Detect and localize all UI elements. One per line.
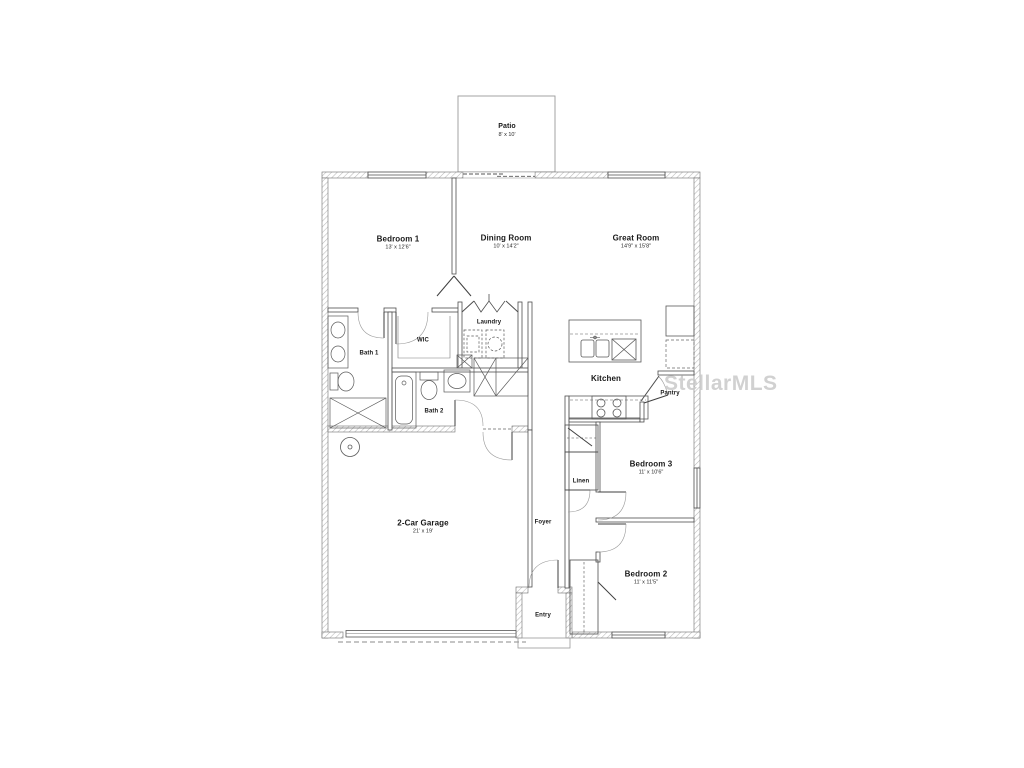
room-label-kitchen: Kitchen	[591, 374, 621, 384]
dryer-icon	[486, 330, 504, 358]
room-label-greatroom: Great Room 14'9" x 15'8"	[613, 234, 660, 251]
shower-icon	[330, 398, 386, 428]
garage-entry-door-arc	[483, 432, 512, 460]
room-label-bedroom1: Bedroom 1 13' x 12'6"	[377, 235, 420, 252]
room-label-foyer: Foyer	[535, 519, 552, 527]
room-label-bedroom2: Bedroom 2 11' x 11'5"	[625, 570, 668, 587]
room-label-bath1: Bath 1	[360, 350, 379, 358]
mls-watermark: StellarMLS	[664, 372, 778, 396]
bedroom2-door-arc	[598, 524, 626, 552]
dishwasher-icon	[612, 339, 636, 360]
kitchen-sink-icon	[581, 336, 609, 357]
stove-icon	[592, 396, 626, 419]
window-bedroom2	[612, 632, 665, 638]
room-label-garage: 2-Car Garage 21' x 19'	[397, 519, 448, 536]
bath2-door-arc	[455, 400, 483, 426]
bedroom3-door-arc	[598, 492, 626, 520]
entry-door-arc	[529, 560, 558, 588]
bathtub-icon	[392, 372, 416, 428]
washer-icon	[464, 330, 482, 358]
room-label-bedroom3: Bedroom 3 11' x 10'6"	[630, 460, 673, 477]
room-label-pantry: Pantry	[660, 390, 679, 398]
floorplan-drawing	[0, 0, 1024, 768]
toilet-icon	[330, 372, 354, 391]
room-label-patio: Patio 8' x 10'	[498, 123, 516, 139]
room-label-bath2: Bath 2	[425, 408, 444, 416]
closet-door-leaf	[568, 428, 592, 446]
entry-porch	[518, 638, 570, 648]
room-label-entry: Entry	[535, 612, 551, 620]
toilet-icon	[420, 372, 438, 400]
room-label-wic: WIC	[417, 337, 429, 345]
door-swings	[358, 276, 668, 600]
refrigerator-icon	[666, 306, 694, 336]
kitchen-counter	[569, 396, 648, 419]
kitchen-island	[569, 320, 641, 362]
sink-icon	[331, 322, 345, 338]
linen-door-arc	[568, 490, 590, 512]
floorplan-page: Patio 8' x 10' Bedroom 1 13' x 12'6" Din…	[0, 0, 1024, 768]
bedroom2-closet-door-leaf	[598, 582, 616, 600]
window-greatroom	[608, 172, 665, 178]
window-bedroom1	[368, 172, 426, 178]
room-label-linen: Linen	[573, 478, 590, 486]
sink-icon	[331, 346, 345, 362]
vanity	[328, 316, 348, 368]
bedroom1-door-leaf	[437, 276, 454, 296]
bedroom1-door-leaf2	[454, 276, 471, 296]
room-label-dining: Dining Room 10' x 14'2"	[481, 234, 532, 251]
room-label-laundry: Laundry	[477, 319, 501, 327]
window-bedroom3	[694, 468, 700, 508]
laundry-closet	[462, 294, 518, 312]
bedroom2-closet	[570, 560, 598, 634]
sliding-door-icon	[463, 172, 535, 178]
bath1-door-arc	[358, 312, 384, 338]
water-heater-icon	[341, 438, 360, 457]
upper-cabinets	[666, 340, 694, 368]
bath1-fixtures	[328, 316, 386, 428]
bath2-vanity	[444, 370, 470, 392]
pantry-angled-wall	[641, 376, 659, 401]
garage-door-icon	[338, 631, 526, 643]
